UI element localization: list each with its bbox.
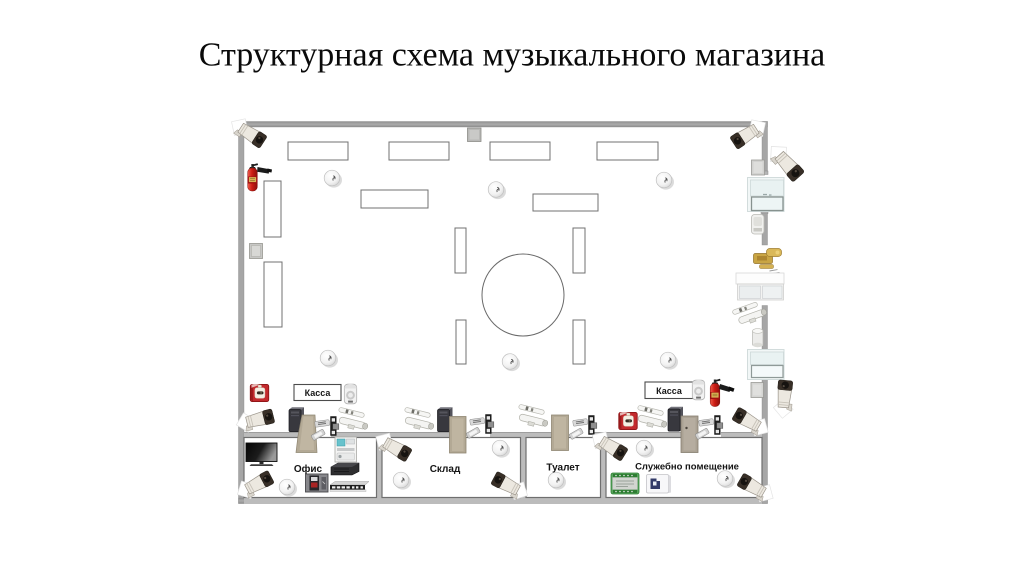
svg-text:Касса: Касса xyxy=(305,388,332,398)
svg-text:Касса: Касса xyxy=(656,386,683,396)
svg-text:Туалет: Туалет xyxy=(546,463,579,474)
svg-text:Склад: Склад xyxy=(430,464,461,475)
svg-text:Служебно помещение: Служебно помещение xyxy=(635,462,739,473)
svg-text:Офис: Офис xyxy=(294,463,323,475)
svg-text:Структурная схема музыкального: Структурная схема музыкального магазина xyxy=(199,37,826,74)
